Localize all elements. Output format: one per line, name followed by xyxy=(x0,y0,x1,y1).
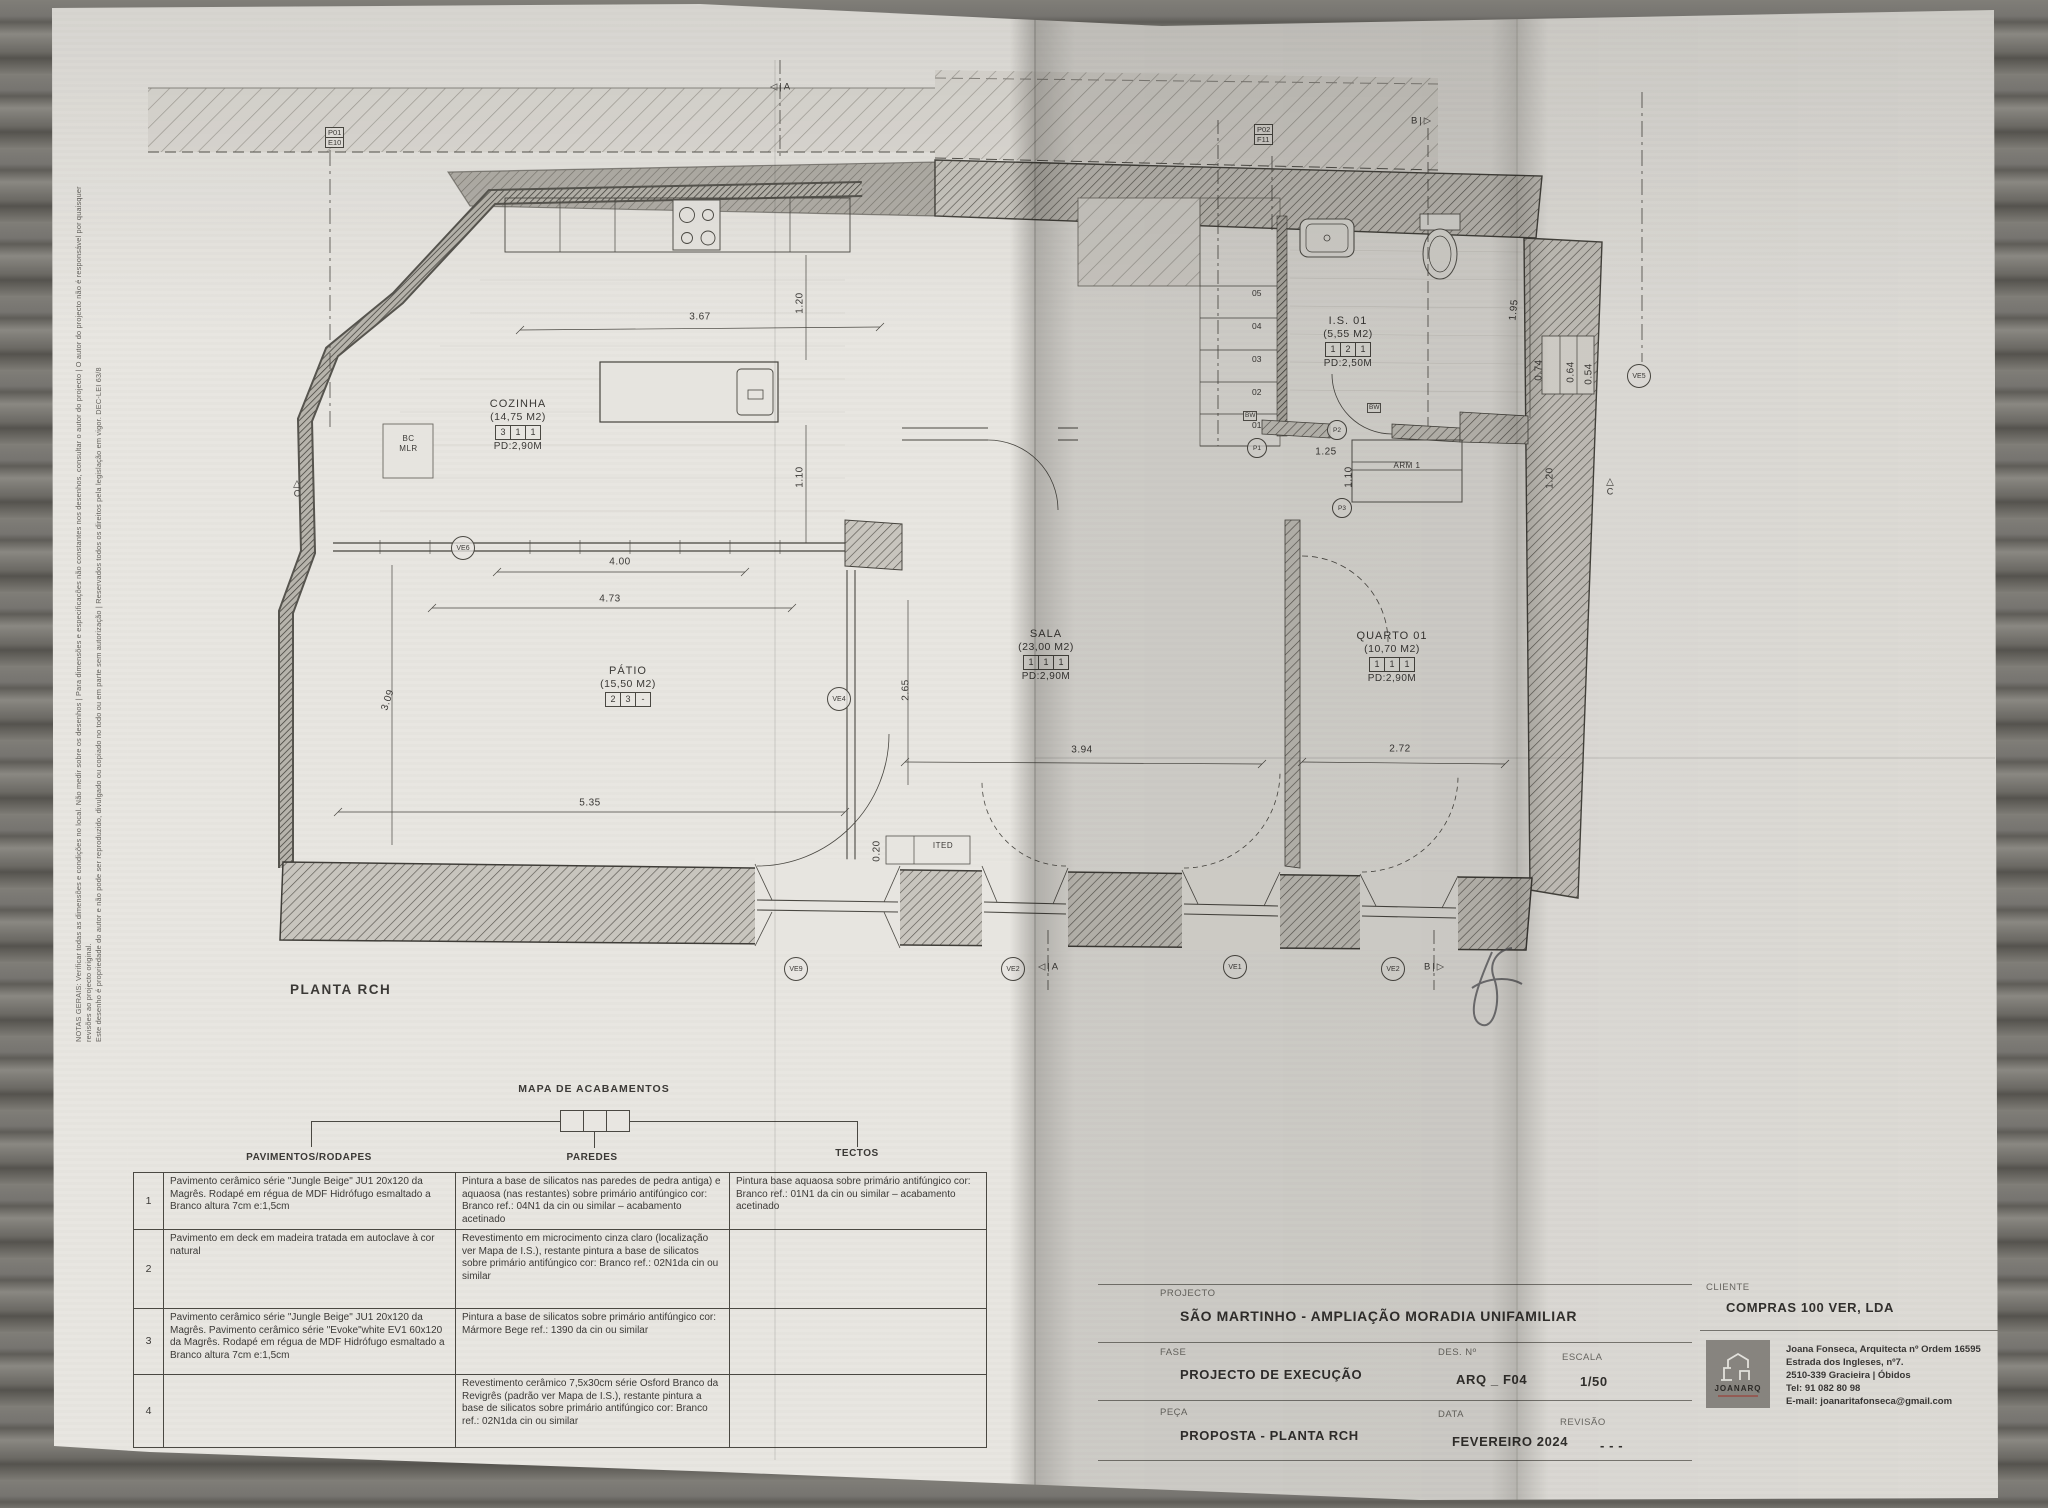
ref-box-p01: P01E10 xyxy=(325,127,344,148)
ceiling-height: PD:2,90M xyxy=(976,671,1116,682)
finish-pavimentos-row-1: Pavimento cerâmico série "Jungle Beige" … xyxy=(164,1173,456,1230)
section-marker-c: △C xyxy=(293,480,301,499)
stair-step-number: 04 xyxy=(1252,321,1261,331)
finish-num-row-4: 4 xyxy=(134,1375,164,1447)
switch-label-bw: BW xyxy=(1243,411,1257,421)
ceiling-height: PD:2,90M xyxy=(1322,673,1462,684)
column-header-paredes: PAREDES xyxy=(455,1152,729,1163)
finish-paredes-row-2: Revestimento em microcimento cinza claro… xyxy=(456,1230,730,1309)
data-label: DATA xyxy=(1438,1409,1464,1420)
small-label-ited: ITED xyxy=(917,841,969,851)
plan-label-layer: NOTAS GERAIS: Verificar todas as dimensõ… xyxy=(0,0,2048,1508)
notes-line-2: Este desenho é propriedade do autor e nã… xyxy=(94,162,104,1042)
logo-tagline-bar xyxy=(1718,1395,1758,1397)
room-label-sala: SALA(23,00 M2)111PD:2,90M xyxy=(976,628,1116,682)
des-no-label: DES. Nº xyxy=(1438,1347,1477,1358)
small-label-arm-1: ARM 1 xyxy=(1366,461,1448,471)
finish-num-row-1: 1 xyxy=(134,1173,164,1230)
finish-code-boxes: 121 xyxy=(1278,342,1418,357)
room-label-cozinha: COZINHA(14,75 M2)311PD:2,90M xyxy=(448,398,588,452)
title-block-rule xyxy=(1098,1460,1692,1461)
legend-box-2 xyxy=(584,1110,607,1132)
peca-label: PEÇA xyxy=(1160,1407,1188,1418)
legend-connector xyxy=(311,1121,312,1147)
architect-phone: Tel: 91 082 80 98 xyxy=(1786,1383,1860,1394)
finish-num-row-3: 3 xyxy=(134,1309,164,1375)
dimension-label: 0.20 xyxy=(872,840,883,861)
paper-sheet: NOTAS GERAIS: Verificar todas as dimensõ… xyxy=(0,0,2048,1508)
ref-marker-ve2: VE2 xyxy=(1001,957,1025,981)
dimension-label: 3.67 xyxy=(689,312,710,323)
fase-value: PROJECTO DE EXECUÇÃO xyxy=(1180,1367,1362,1382)
plan-title: PLANTA RCH xyxy=(290,982,391,997)
finish-tectos-row-4 xyxy=(730,1375,986,1447)
fase-label: FASE xyxy=(1160,1347,1186,1358)
section-marker-c: △C xyxy=(1606,478,1614,497)
section-marker-b: B|▷ xyxy=(1410,116,1432,127)
cliente-label: CLIENTE xyxy=(1706,1282,1750,1293)
room-label-patio: PÁTIO(15,50 M2)23- xyxy=(558,665,698,707)
small-label-bc-mlr: BCMLR xyxy=(384,434,433,453)
finish-num-row-2: 2 xyxy=(134,1230,164,1309)
dimension-label: 1.25 xyxy=(1315,447,1336,458)
finish-paredes-row-3: Pintura a base de silicatos sobre primár… xyxy=(456,1309,730,1375)
projecto-label: PROJECTO xyxy=(1160,1288,1216,1299)
finish-paredes-row-4: Revestimento cerâmico 7,5x30cm série Osf… xyxy=(456,1375,730,1447)
notes-line-1: NOTAS GERAIS: Verificar todas as dimensõ… xyxy=(74,162,94,1042)
legend-box-3 xyxy=(607,1110,630,1132)
room-area: (15,50 M2) xyxy=(558,678,698,690)
ceiling-height: PD:2,90M xyxy=(448,441,588,452)
ref-marker-ve2: VE2 xyxy=(1381,957,1405,981)
dimension-label: 0.64 xyxy=(1566,361,1577,382)
finishes-table-title: MAPA DE ACABAMENTOS xyxy=(474,1083,714,1095)
ref-box-p02: P02F11 xyxy=(1254,124,1273,145)
room-name: I.S. 01 xyxy=(1278,315,1418,327)
revisao-label: REVISÃO xyxy=(1560,1417,1606,1428)
ref-marker-p3: P3 xyxy=(1332,498,1352,518)
finish-code-boxes: 111 xyxy=(976,655,1116,670)
ref-marker-ve6: VE6 xyxy=(451,536,475,560)
ref-marker-ve4: VE4 xyxy=(827,687,851,711)
room-label-quarto: QUARTO 01(10,70 M2)111PD:2,90M xyxy=(1322,630,1462,684)
switch-label-bw: BW xyxy=(1367,403,1381,413)
section-marker-a: ◁|A xyxy=(769,82,791,93)
ref-marker-ve5: VE5 xyxy=(1627,364,1651,388)
stair-step-number: 01 xyxy=(1252,420,1261,430)
title-block-rule xyxy=(1098,1400,1692,1401)
logo-wordmark: JOANARQ xyxy=(1714,1384,1761,1393)
room-area: (10,70 M2) xyxy=(1322,643,1462,655)
dimension-label: 0.74 xyxy=(1534,359,1545,380)
architect-address-1: Estrada dos Ingleses, nº7. xyxy=(1786,1357,1904,1368)
escala-value: 1/50 xyxy=(1580,1374,1608,1389)
room-label-is01: I.S. 01(5,55 M2)121PD:2,50M xyxy=(1278,315,1418,369)
finish-tectos-row-3 xyxy=(730,1309,986,1375)
finish-tectos-row-2 xyxy=(730,1230,986,1309)
projecto-value: SÃO MARTINHO - AMPLIAÇÃO MORADIA UNIFAMI… xyxy=(1180,1308,1577,1324)
finish-code-boxes: 111 xyxy=(1322,657,1462,672)
finish-paredes-row-1: Pintura a base de silicatos nas paredes … xyxy=(456,1173,730,1230)
escala-label: ESCALA xyxy=(1562,1352,1603,1363)
ref-marker-ve9: VE9 xyxy=(784,957,808,981)
dimension-label: 3.94 xyxy=(1071,745,1092,756)
dimension-label: 1.95 xyxy=(1507,299,1520,322)
finishes-legend-boxes xyxy=(560,1110,630,1132)
architect-logo: JOANARQ xyxy=(1706,1340,1770,1408)
house-icon xyxy=(1718,1352,1758,1382)
architect-address-2: 2510-339 Gracieira | Óbidos xyxy=(1786,1370,1911,1381)
title-block-rule xyxy=(1700,1330,2006,1331)
peca-value: PROPOSTA - PLANTA RCH xyxy=(1180,1428,1359,1443)
finish-pavimentos-row-3: Pavimento cerâmico série "Jungle Beige" … xyxy=(164,1309,456,1375)
dimension-label: 3.09 xyxy=(379,688,396,712)
finish-code-boxes: 23- xyxy=(558,692,698,707)
ceiling-height: PD:2,50M xyxy=(1278,358,1418,369)
room-area: (23,00 M2) xyxy=(976,641,1116,653)
title-block-rule xyxy=(1098,1342,1692,1343)
title-block-rule xyxy=(1098,1284,1692,1285)
room-area: (5,55 M2) xyxy=(1278,328,1418,340)
room-name: PÁTIO xyxy=(558,665,698,677)
finish-pavimentos-row-4 xyxy=(164,1375,456,1447)
legend-connector xyxy=(594,1132,595,1148)
dimension-label: 2.65 xyxy=(901,679,912,700)
ref-marker-p1: P1 xyxy=(1247,438,1267,458)
architect-email: E-mail: joanaritafonseca@gmail.com xyxy=(1786,1396,1952,1407)
cliente-value: COMPRAS 100 VER, LDA xyxy=(1726,1300,1894,1315)
stair-step-number: 02 xyxy=(1252,387,1261,397)
legend-connector xyxy=(629,1121,857,1122)
column-header-tectos: TECTOS xyxy=(729,1148,985,1159)
room-name: SALA xyxy=(976,628,1116,640)
legend-connector xyxy=(857,1121,858,1147)
general-notes-sidebar: NOTAS GERAIS: Verificar todas as dimensõ… xyxy=(74,162,104,1042)
dimension-label: 4.73 xyxy=(599,594,620,605)
room-area: (14,75 M2) xyxy=(448,411,588,423)
des-no-value: ARQ _ F04 xyxy=(1456,1372,1527,1387)
section-marker-b: B|▷ xyxy=(1423,962,1445,973)
finish-code-boxes: 311 xyxy=(448,425,588,440)
architect-name: Joana Fonseca, Arquitecta nº Ordem 16595 xyxy=(1786,1344,1981,1355)
stair-step-number: 03 xyxy=(1252,354,1261,364)
room-name: QUARTO 01 xyxy=(1322,630,1462,642)
ref-marker-p2: P2 xyxy=(1327,420,1347,440)
legend-box-1 xyxy=(560,1110,584,1132)
dimension-label: 4.00 xyxy=(609,557,630,568)
section-marker-a: ◁|A xyxy=(1037,962,1059,973)
ref-marker-ve1: VE1 xyxy=(1223,955,1247,979)
dimension-label: 5.35 xyxy=(579,798,600,809)
finish-pavimentos-row-2: Pavimento em deck em madeira tratada em … xyxy=(164,1230,456,1309)
dimension-label: 1.20 xyxy=(795,292,806,313)
dimension-label: 1.10 xyxy=(795,466,806,487)
stair-step-number: 05 xyxy=(1252,288,1261,298)
dimension-label: 0.54 xyxy=(1584,363,1595,384)
dimension-label: 1.10 xyxy=(1344,466,1355,487)
data-value: FEVEREIRO 2024 xyxy=(1452,1434,1568,1449)
legend-connector xyxy=(311,1121,560,1122)
column-header-pavimentos: PAVIMENTOS/RODAPES xyxy=(164,1152,454,1163)
dimension-label: 2.72 xyxy=(1389,744,1410,755)
dimension-label: 1.20 xyxy=(1545,467,1556,488)
revisao-value: - - - xyxy=(1600,1438,1623,1453)
finishes-table: 1Pavimento cerâmico série "Jungle Beige"… xyxy=(133,1172,987,1448)
finish-tectos-row-1: Pintura base aquaosa sobre primário anti… xyxy=(730,1173,986,1230)
room-name: COZINHA xyxy=(448,398,588,410)
